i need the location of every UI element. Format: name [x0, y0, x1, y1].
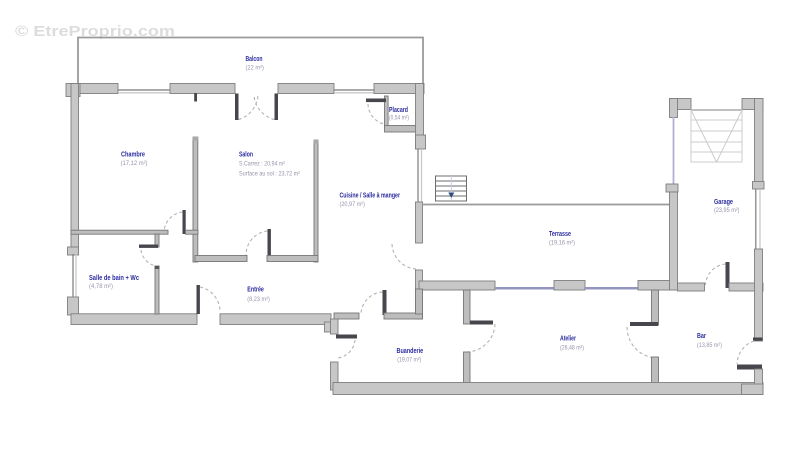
svg-text:(23,95 m²): (23,95 m²) [714, 207, 740, 214]
svg-text:(17,12 m²): (17,12 m²) [121, 160, 148, 167]
svg-text:(19,16 m²): (19,16 m²) [549, 240, 575, 247]
svg-text:(8,23 m²): (8,23 m²) [247, 296, 269, 303]
svg-text:(19,07 m²): (19,07 m²) [397, 357, 421, 364]
svg-text:Salon: Salon [239, 152, 253, 159]
svg-text:Atelier: Atelier [560, 336, 576, 343]
svg-text:Surface au sol : 23,72 m²: Surface au sol : 23,72 m² [239, 171, 301, 178]
svg-text:(4,78 m²): (4,78 m²) [89, 283, 113, 290]
svg-text:(0,54 m²): (0,54 m²) [389, 115, 409, 122]
svg-text:Chambre: Chambre [121, 152, 145, 159]
svg-text:(20,97 m²): (20,97 m²) [340, 201, 366, 208]
svg-text:(13,85 m²): (13,85 m²) [697, 342, 722, 349]
svg-text:Cuisine / Salle à manger: Cuisine / Salle à manger [340, 192, 401, 199]
svg-text:(22 m²): (22 m²) [246, 65, 264, 72]
svg-text:Garage: Garage [714, 199, 733, 206]
svg-text:(26,48 m²): (26,48 m²) [560, 345, 584, 352]
svg-text:S.Carrez : 20,94 m²: S.Carrez : 20,94 m² [239, 161, 286, 168]
svg-text:Terrasse: Terrasse [549, 231, 571, 238]
svg-text:Placard: Placard [389, 107, 408, 114]
svg-text:Buanderie: Buanderie [397, 348, 424, 355]
svg-text:Bar: Bar [697, 333, 706, 340]
svg-text:Salle de bain + Wc: Salle de bain + Wc [89, 275, 139, 282]
svg-text:Balcon: Balcon [246, 56, 263, 63]
svg-text:Entrée: Entrée [247, 287, 264, 294]
